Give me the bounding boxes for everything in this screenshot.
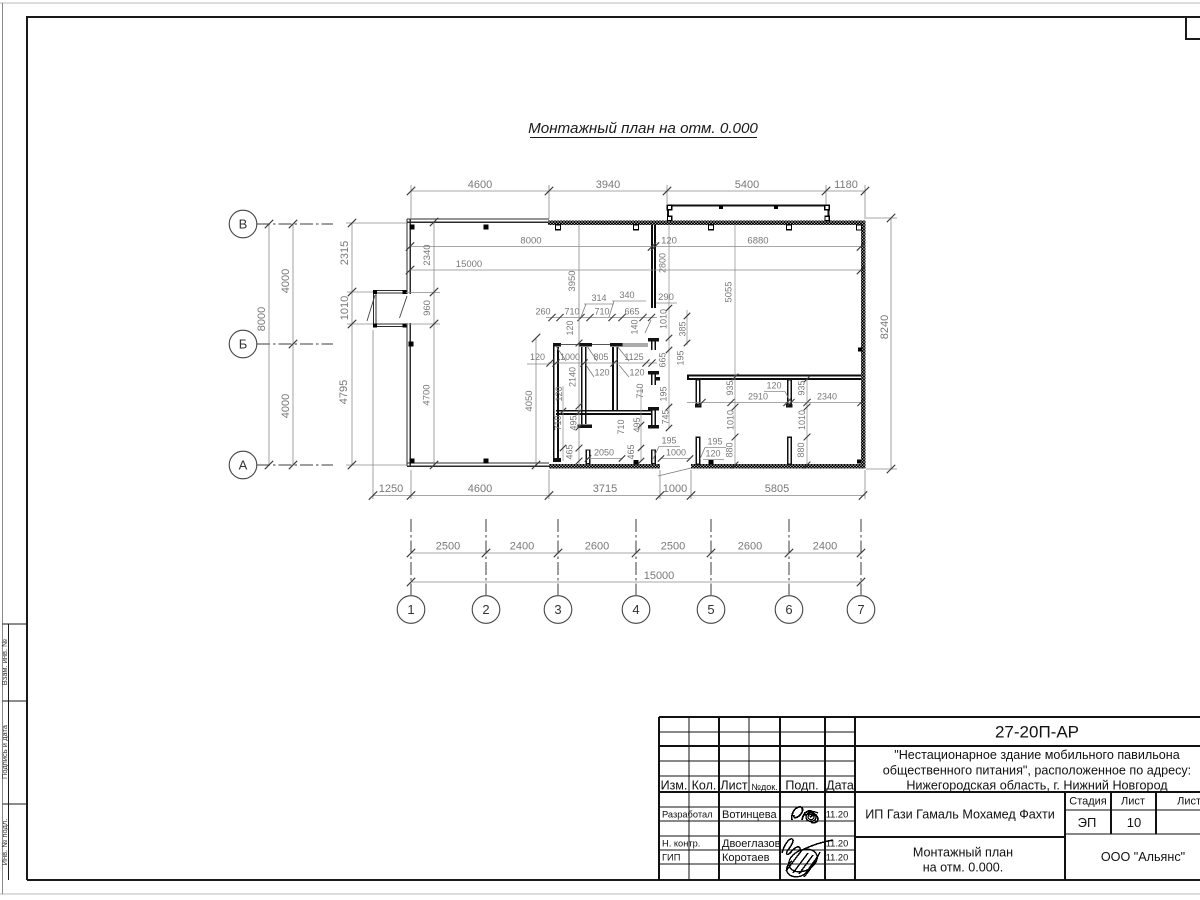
svg-text:11.20: 11.20 bbox=[826, 853, 849, 863]
svg-text:Вотинцева: Вотинцева bbox=[722, 809, 777, 821]
svg-text:Монтажный план на отм. 0.000: Монтажный план на отм. 0.000 bbox=[528, 120, 758, 137]
svg-text:710: 710 bbox=[616, 419, 626, 434]
svg-text:195: 195 bbox=[676, 350, 686, 365]
svg-text:5805: 5805 bbox=[765, 483, 789, 495]
svg-text:195: 195 bbox=[707, 437, 722, 447]
svg-text:4600: 4600 bbox=[468, 483, 492, 495]
svg-text:Стадия: Стадия bbox=[1069, 796, 1107, 808]
svg-text:2315: 2315 bbox=[339, 241, 351, 265]
svg-text:Разработал: Разработал bbox=[662, 810, 713, 820]
svg-text:4600: 4600 bbox=[468, 179, 492, 191]
svg-text:ООО "Альянс": ООО "Альянс" bbox=[1101, 850, 1185, 864]
svg-text:1000: 1000 bbox=[663, 483, 687, 495]
svg-text:Кол.: Кол. bbox=[692, 779, 717, 793]
svg-text:2140: 2140 bbox=[568, 367, 578, 387]
svg-text:10: 10 bbox=[1127, 815, 1141, 830]
svg-text:8000: 8000 bbox=[256, 307, 268, 331]
svg-text:665: 665 bbox=[658, 352, 668, 367]
svg-text:314: 314 bbox=[591, 293, 606, 303]
svg-text:805: 805 bbox=[593, 352, 608, 362]
svg-text:8000: 8000 bbox=[520, 236, 541, 247]
svg-text:880: 880 bbox=[796, 442, 806, 457]
svg-text:ЭП: ЭП bbox=[1078, 815, 1097, 830]
svg-text:2: 2 bbox=[482, 602, 489, 617]
svg-text:8240: 8240 bbox=[879, 315, 891, 339]
svg-text:1010: 1010 bbox=[726, 410, 736, 430]
svg-text:710: 710 bbox=[594, 307, 609, 317]
svg-text:Взам. инв. №: Взам. инв. № bbox=[0, 639, 9, 685]
svg-text:15000: 15000 bbox=[644, 570, 675, 582]
svg-text:6: 6 bbox=[785, 602, 792, 617]
svg-text:3950: 3950 bbox=[567, 270, 578, 291]
svg-text:Подпись и дата: Подпись и дата bbox=[0, 724, 9, 779]
svg-text:Листов: Листов bbox=[1177, 796, 1200, 808]
svg-text:Коротаев: Коротаев bbox=[722, 852, 770, 864]
svg-text:Двоеглазов: Двоеглазов bbox=[722, 838, 781, 850]
svg-text:А: А bbox=[239, 458, 248, 473]
svg-text:1180: 1180 bbox=[834, 179, 858, 191]
svg-text:11.20: 11.20 bbox=[826, 810, 849, 820]
svg-text:495: 495 bbox=[569, 415, 579, 430]
svg-text:120: 120 bbox=[705, 449, 720, 459]
svg-text:465: 465 bbox=[565, 444, 575, 459]
svg-text:Лист: Лист bbox=[720, 779, 747, 793]
svg-text:140: 140 bbox=[630, 319, 640, 334]
svg-text:195: 195 bbox=[659, 386, 669, 401]
svg-text:4795: 4795 bbox=[338, 380, 350, 404]
svg-text:2910: 2910 bbox=[748, 392, 768, 402]
svg-text:260: 260 bbox=[535, 307, 550, 317]
svg-text:Инв. № подл.: Инв. № подл. bbox=[0, 819, 9, 866]
svg-text:2340: 2340 bbox=[817, 392, 837, 402]
svg-text:2400: 2400 bbox=[510, 541, 534, 553]
svg-text:120: 120 bbox=[766, 381, 781, 391]
svg-text:Дата: Дата bbox=[826, 779, 854, 793]
svg-text:120: 120 bbox=[594, 368, 609, 378]
svg-text:2500: 2500 bbox=[661, 541, 685, 553]
svg-text:Изм.: Изм. bbox=[661, 779, 688, 793]
svg-text:385: 385 bbox=[678, 321, 688, 336]
svg-text:4000: 4000 bbox=[280, 269, 292, 293]
svg-text:Подп.: Подп. bbox=[785, 779, 818, 793]
svg-text:2600: 2600 bbox=[738, 541, 762, 553]
svg-text:4: 4 bbox=[632, 602, 639, 617]
svg-text:Лист: Лист bbox=[1121, 796, 1145, 808]
svg-text:Н. контр.: Н. контр. bbox=[662, 839, 700, 849]
svg-text:2800: 2800 bbox=[658, 253, 668, 273]
svg-text:710: 710 bbox=[635, 383, 645, 398]
svg-text:7: 7 bbox=[857, 602, 864, 617]
svg-text:880: 880 bbox=[725, 442, 735, 457]
svg-text:745: 745 bbox=[661, 409, 671, 424]
svg-text:на отм. 0.000.: на отм. 0.000. bbox=[923, 861, 1004, 875]
svg-text:960: 960 bbox=[422, 300, 433, 316]
svg-text:340: 340 bbox=[619, 290, 634, 300]
svg-text:1010: 1010 bbox=[659, 309, 669, 329]
svg-text:2400: 2400 bbox=[813, 541, 837, 553]
svg-text:4000: 4000 bbox=[280, 394, 292, 418]
svg-text:В: В bbox=[239, 217, 248, 232]
svg-text:ГИП: ГИП bbox=[662, 853, 680, 863]
svg-text:935: 935 bbox=[797, 380, 807, 395]
svg-text:195: 195 bbox=[661, 436, 676, 446]
svg-text:общественного питания", распол: общественного питания", расположенное по… bbox=[883, 764, 1191, 778]
svg-text:710: 710 bbox=[553, 415, 563, 430]
svg-text:№док.: №док. bbox=[751, 782, 777, 792]
svg-text:1010: 1010 bbox=[797, 410, 807, 430]
svg-text:5400: 5400 bbox=[735, 179, 759, 191]
svg-text:Б: Б bbox=[239, 337, 248, 352]
svg-text:6880: 6880 bbox=[747, 236, 768, 247]
svg-text:4700: 4700 bbox=[422, 384, 433, 405]
svg-text:3940: 3940 bbox=[596, 179, 620, 191]
svg-text:495: 495 bbox=[632, 417, 642, 432]
svg-text:290: 290 bbox=[658, 292, 674, 303]
svg-text:2500: 2500 bbox=[436, 541, 460, 553]
svg-text:1125: 1125 bbox=[624, 352, 643, 362]
svg-text:2340: 2340 bbox=[422, 244, 433, 265]
svg-text:665: 665 bbox=[624, 307, 639, 317]
svg-text:2600: 2600 bbox=[585, 541, 609, 553]
svg-text:1010: 1010 bbox=[339, 296, 351, 320]
svg-text:5055: 5055 bbox=[724, 281, 735, 302]
svg-text:120: 120 bbox=[554, 386, 564, 401]
svg-text:120: 120 bbox=[565, 320, 575, 335]
svg-text:3: 3 bbox=[554, 602, 561, 617]
svg-text:3715: 3715 bbox=[593, 483, 617, 495]
svg-text:"Нестационарное здание мобильн: "Нестационарное здание мобильного павиль… bbox=[894, 748, 1180, 762]
svg-text:2050: 2050 bbox=[594, 448, 614, 458]
svg-text:5: 5 bbox=[707, 602, 714, 617]
svg-text:1: 1 bbox=[407, 602, 414, 617]
svg-text:Нижегородская область, г. Нижн: Нижегородская область, г. Нижний Новгоро… bbox=[906, 779, 1168, 793]
svg-text:710: 710 bbox=[564, 307, 579, 317]
svg-text:27-20П-АР: 27-20П-АР bbox=[995, 723, 1079, 742]
svg-text:4050: 4050 bbox=[524, 390, 535, 411]
svg-text:120: 120 bbox=[530, 352, 545, 362]
svg-text:465: 465 bbox=[626, 444, 636, 459]
svg-text:1250: 1250 bbox=[379, 483, 403, 495]
svg-text:Монтажный план: Монтажный план bbox=[913, 846, 1013, 860]
svg-text:120: 120 bbox=[629, 368, 644, 378]
svg-text:ИП Гази Гамаль Мохамед Фахти: ИП Гази Гамаль Мохамед Фахти bbox=[865, 808, 1055, 822]
svg-text:1000: 1000 bbox=[666, 448, 686, 458]
svg-text:935: 935 bbox=[725, 380, 735, 395]
svg-text:15000: 15000 bbox=[456, 259, 482, 270]
